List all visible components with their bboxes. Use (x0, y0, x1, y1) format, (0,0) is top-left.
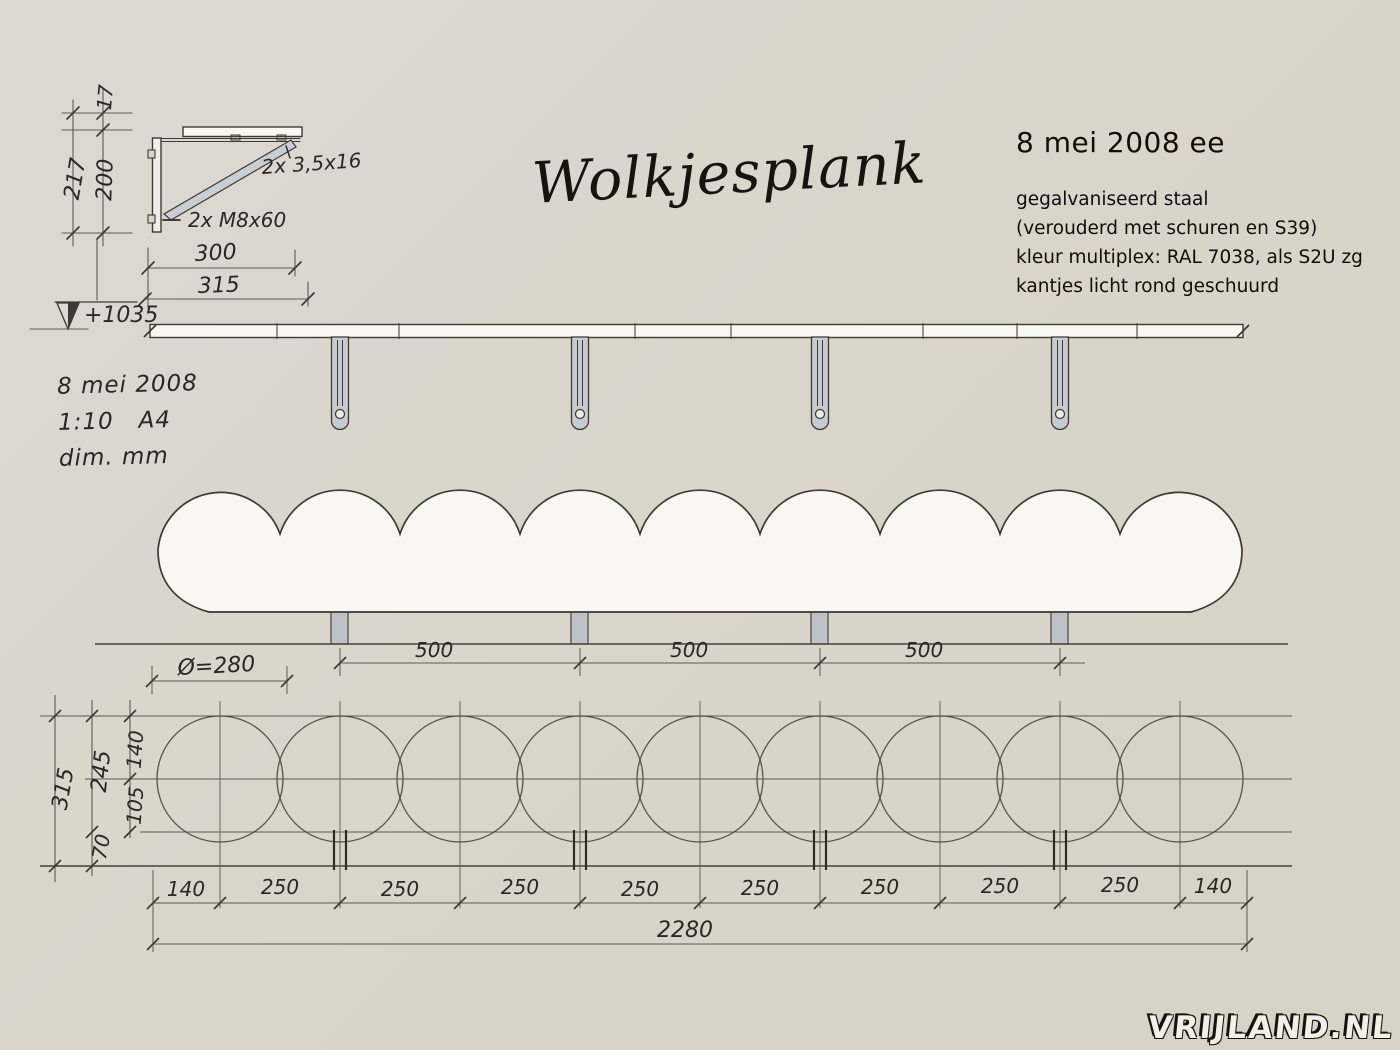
plan-overall-dim: 2280 (147, 918, 1253, 950)
plan-view: 315 245 140 105 70 140 250 250 250 250 2… (40, 695, 1292, 952)
chain-label-0: 140 (167, 877, 205, 901)
detail-bolt-upper (148, 150, 155, 158)
material-notes: 8 mei 2008 ee gegalvaniseerd staal (vero… (1016, 126, 1376, 301)
plan-left-dims: 315 245 140 105 70 (48, 695, 149, 882)
chain-label-8: 250 (1101, 873, 1139, 897)
sheet-note-date: 8 mei 2008 (57, 363, 278, 405)
dim-label-315: 315 (197, 273, 240, 299)
sheet-note-scale: 1:10 A4 (58, 399, 279, 441)
spacing-label-1: 500 (415, 638, 453, 662)
level-mark: +1035 (30, 302, 158, 329)
dim-label-217: 217 (60, 156, 92, 202)
side-bracket-2 (572, 337, 589, 430)
side-shelf-plank (150, 325, 1243, 338)
front-view: 500 500 500 Ø=280 (95, 490, 1288, 694)
material-note-line: gegalvaniseerd staal (1016, 185, 1376, 214)
sheet-note-units: dim. mm (59, 435, 280, 477)
plan-dim-105: 105 (122, 786, 149, 826)
chain-label-6: 250 (861, 875, 899, 899)
material-note-line: kantjes licht rond geschuurd (1016, 272, 1376, 301)
material-note-line: (verouderd met schuren en S39) (1016, 214, 1376, 243)
chain-label-3: 250 (501, 875, 539, 899)
dim-label-200: 200 (92, 158, 118, 201)
sheet-notes: 8 mei 20081:10 A4dim. mm (57, 363, 280, 477)
chain-label-7: 250 (981, 874, 1019, 898)
cloud-shelf-outline (158, 490, 1242, 612)
plan-dim-70: 70 (87, 832, 115, 861)
bolts-label: 2x M8x60 (188, 208, 286, 232)
side-bracket-4 (1052, 337, 1069, 430)
chain-label-5: 250 (741, 876, 779, 900)
bracket-detail-view: 2x 3,5x16 2x M8x60 17 200 217 300 315 +1… (30, 83, 362, 329)
diameter-label: Ø=280 (176, 652, 256, 681)
diameter-dim: Ø=280 (146, 652, 293, 694)
spacing-label-3: 500 (905, 638, 943, 662)
drawing-sheet: 2x 3,5x16 2x M8x60 17 200 217 300 315 +1… (0, 0, 1400, 1050)
watermark: VRIJLAND.NL (1146, 1010, 1396, 1046)
date-heading: 8 mei 2008 ee (1016, 126, 1376, 159)
spacing-label-2: 500 (670, 638, 708, 662)
chain-label-1: 250 (261, 875, 299, 899)
side-bracket-3 (812, 337, 829, 430)
plan-center-lines (220, 701, 1180, 908)
plan-dim-315: 315 (48, 766, 80, 812)
detail-bolt-lower (148, 215, 155, 223)
chain-label-2: 250 (381, 877, 419, 901)
side-bracket-1 (332, 337, 349, 430)
chain-label-9: 140 (1194, 874, 1232, 898)
side-view (144, 323, 1249, 430)
side-brackets (332, 337, 1069, 430)
level-label: +1035 (84, 303, 158, 328)
plan-dim-140: 140 (122, 730, 149, 770)
dim-label-300: 300 (194, 240, 237, 267)
material-note-line: kleur multiplex: RAL 7038, als S2U zg (1016, 243, 1376, 272)
plan-dim-245: 245 (87, 749, 116, 793)
dim-label-17: 17 (92, 83, 118, 111)
overall-dim-label: 2280 (657, 918, 713, 943)
chain-label-4: 250 (621, 877, 659, 901)
